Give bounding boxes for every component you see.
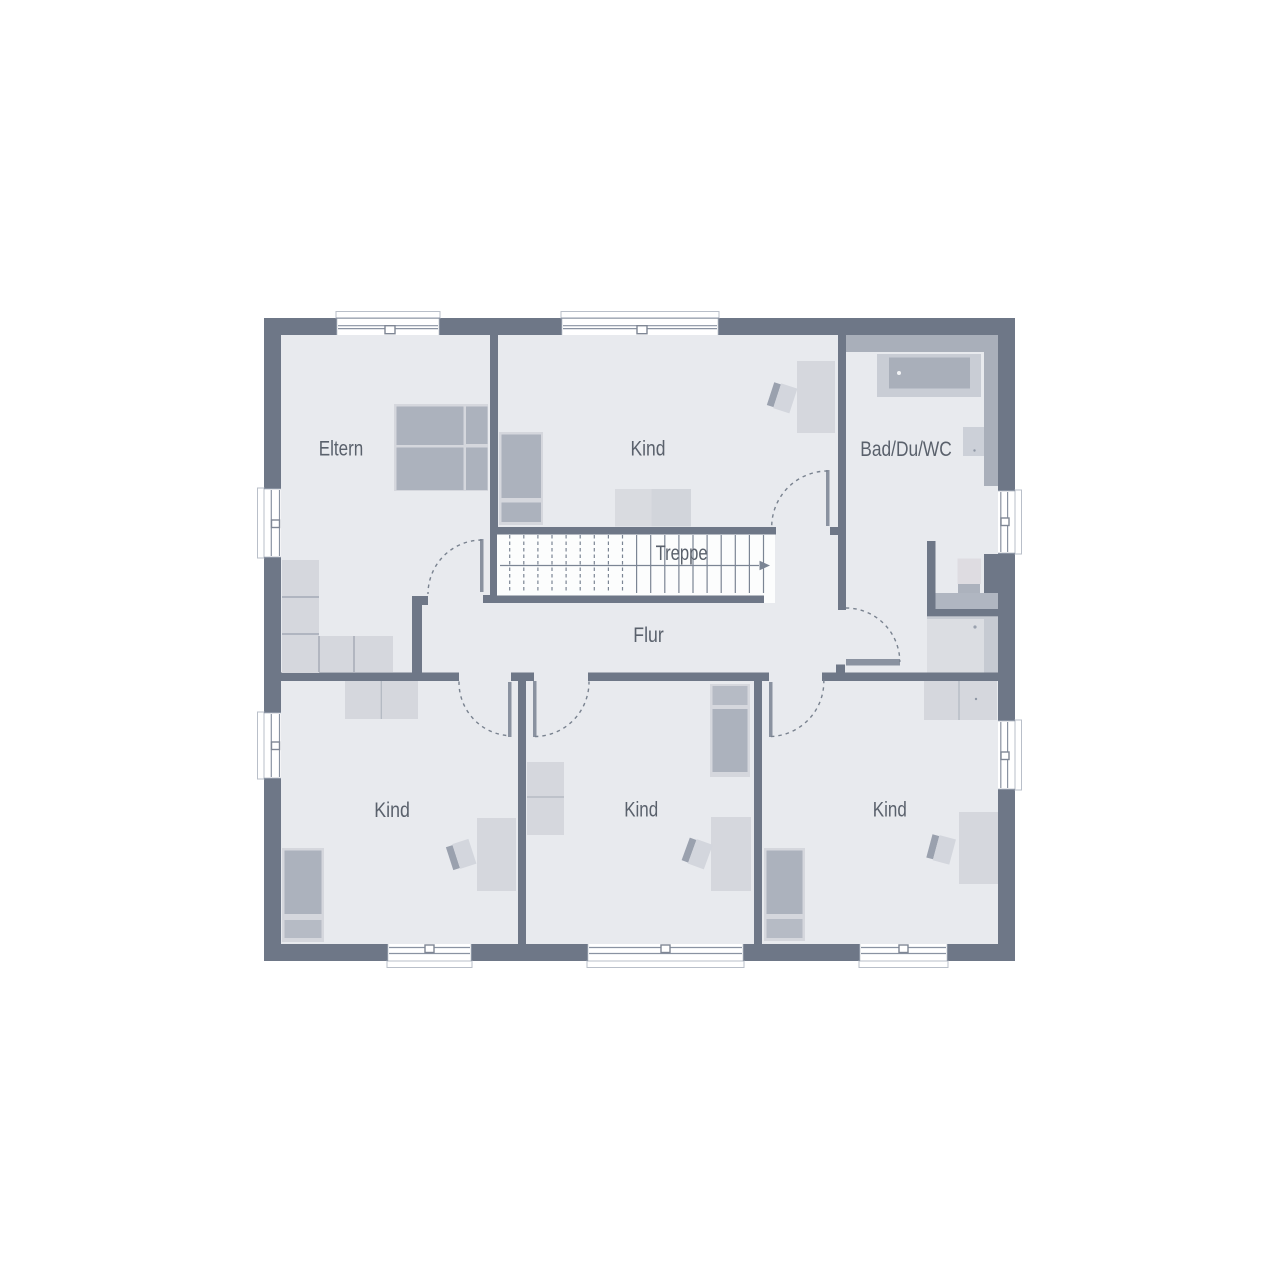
svg-text:Flur: Flur	[633, 623, 663, 647]
svg-text:Kind: Kind	[374, 798, 410, 822]
svg-text:Bad/Du/WC: Bad/Du/WC	[860, 437, 952, 461]
svg-text:Kind: Kind	[624, 798, 658, 822]
svg-text:Treppe: Treppe	[656, 541, 708, 565]
svg-text:Kind: Kind	[873, 798, 907, 822]
svg-text:Eltern: Eltern	[319, 437, 364, 461]
svg-text:Kind: Kind	[631, 436, 666, 460]
